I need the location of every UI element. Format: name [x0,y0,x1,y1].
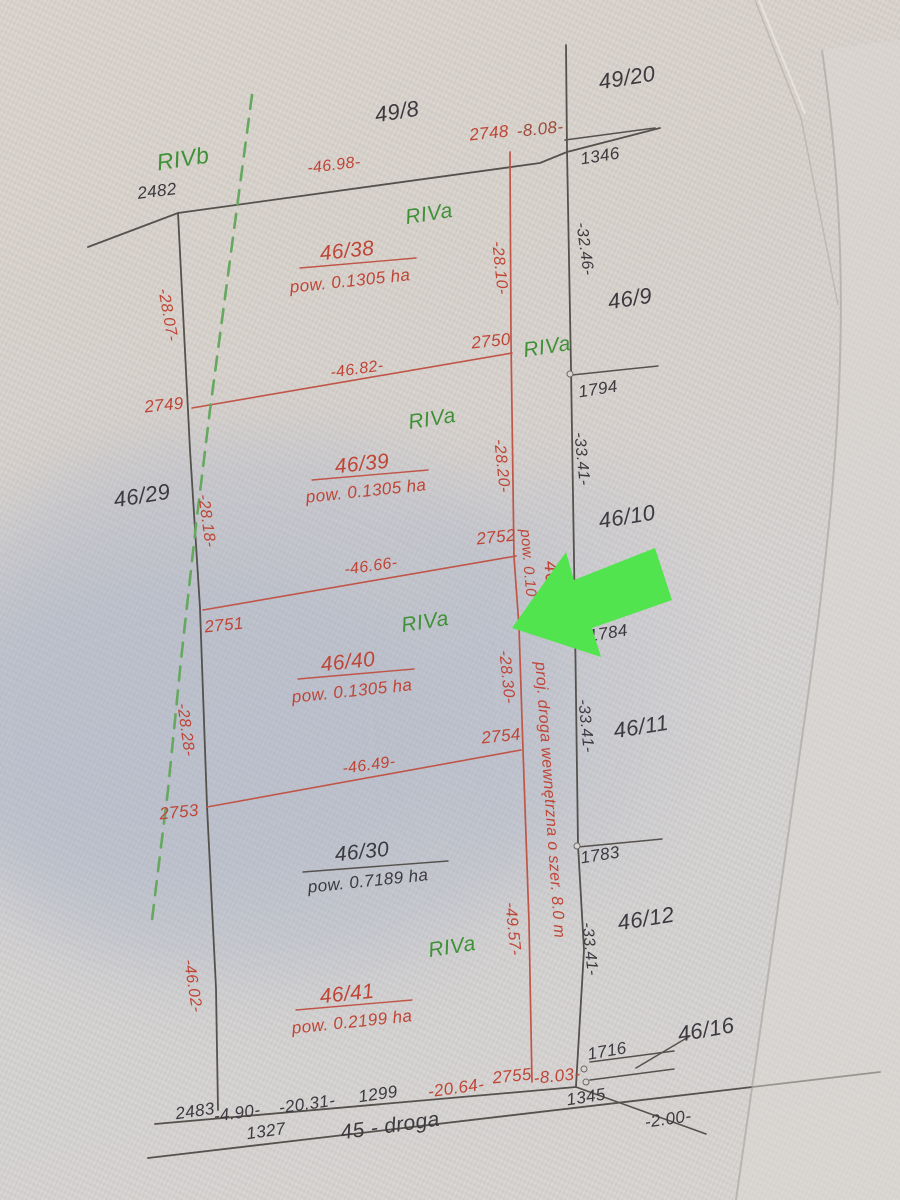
division-road-line [510,152,532,1082]
fraction-bar-46-30 [303,861,448,872]
map-label: RIVa [404,200,454,228]
map-label: RIVa [427,933,477,961]
map-label: 46/10 [597,502,657,533]
map-label: 49/20 [597,63,657,94]
photo-shadow [0,440,570,980]
tick-line-1794 [572,366,658,375]
map-label: 2749 [144,394,185,415]
map-label: pow. 0.7189 ha [307,866,429,896]
map-label: -28.28- [173,702,196,757]
road-lower-edge [148,1072,880,1158]
map-label: -46.98- [306,155,361,177]
map-label: 46/9 [606,285,653,314]
map-label: -28.07- [154,287,179,342]
map-label: 2752 [476,526,517,547]
map-label: 1716 [586,1039,628,1063]
photo-shadow [0,560,440,900]
map-label: 1794 [577,378,619,401]
leader-46-16 [636,1036,690,1068]
fold-crease [755,0,838,305]
map-label: 1783 [579,844,621,867]
map-label: 46/38 [319,238,375,265]
photo-of-cadastral-map: 49/2049/82748-8.08-1346RIVb2482-46.98-RI… [0,0,900,1200]
map-label: -46.49- [341,754,396,777]
fraction-bar-46-38 [300,258,416,268]
map-label: pow. 0.1305 ha [289,266,411,296]
north-boundary-line [88,128,660,247]
map-label: 1784 [587,622,629,645]
map-label: -33.41- [570,432,592,487]
map-label: 2483 [174,1100,215,1122]
map-label: proj. droga wewnętrzna o szer. 8.0 m [531,661,566,938]
segment-2-00 [576,1087,706,1134]
map-label: -8.08- [516,118,564,140]
division-line-46-66 [203,556,516,610]
underlying-sheet [736,40,900,1200]
map-label: 46/29 [112,481,172,512]
map-label: -2.00- [644,1107,693,1130]
map-label: -46.66- [343,555,398,578]
map-label: RIVa [522,333,572,361]
map-label: -8.03- [533,1065,581,1087]
map-label: 1299 [357,1083,398,1105]
map-label: -46.82- [329,358,384,381]
map-label: 2754 [481,725,522,746]
map-label: pow. 0.2199 ha [291,1007,413,1037]
map-label: -28.18- [194,493,217,548]
paper-edge [736,50,841,1200]
map-label: 1345 [565,1086,607,1109]
map-label: 2751 [204,614,245,635]
map-label: 46/40 [320,649,376,676]
map-label: pow. 0.10 [518,529,539,598]
west-boundary-line [178,213,218,1110]
map-label: RIVa [400,608,450,636]
fold-crease-highlight [759,0,805,114]
map-drawing-layer [0,0,900,1200]
map-label: RIVa [407,405,457,433]
map-label: 2753 [159,801,200,822]
fraction-bar-46-41 [296,1000,412,1010]
map-label: 46/41 [319,981,375,1008]
map-label: 46/16 [676,1014,736,1046]
map-label: -49.57- [501,902,523,957]
map-label: RIVb [155,144,211,175]
map-label: pow. 0.1305 ha [305,476,427,506]
junction-marker [581,1066,587,1072]
map-label: -46.02- [180,958,204,1013]
division-line-46-49 [207,750,521,807]
map-label: -33.41- [574,699,596,754]
map-label: 46/3 [540,560,563,602]
green-highlight-arrow [512,548,672,657]
map-label: 2755 [492,1065,533,1086]
map-label: 1327 [245,1120,286,1142]
photo-shadow [430,470,690,890]
east-boundary-line [566,45,584,1086]
map-label: 45 - droga [339,1109,441,1144]
map-label: -32.46- [572,221,595,276]
tick-line-1716-a [590,1051,674,1062]
map-label: -28.20- [490,439,512,494]
map-label: 46/39 [334,451,390,478]
map-label: 1346 [579,145,621,168]
map-label: -20.64- [427,1076,485,1101]
fraction-bar-46-40 [298,669,414,679]
map-label: 46/11 [612,712,670,742]
map-label: 2748 [469,122,510,143]
junction-marker [574,843,580,849]
junction-marker [583,1079,589,1085]
map-label: -28.30- [495,650,517,705]
map-label: 49/8 [373,98,420,127]
division-line-46-82 [192,353,512,408]
fraction-bar-46-39 [312,470,428,480]
annotation-and-paper-layer [0,0,900,1200]
junction-marker [567,371,573,377]
map-label: -28.10- [488,241,510,296]
map-label: -20.31- [278,1092,336,1117]
map-label: 2750 [471,330,512,351]
soil-class-dashed-line [152,95,252,920]
map-label: -4.90- [213,1101,262,1124]
map-label: -33.41- [578,922,600,977]
map-label: pow. 0.1305 ha [291,676,413,706]
tick-line-1783 [578,839,662,847]
paper-edge-and-creases [736,0,900,1200]
tick-line-1346 [565,128,655,140]
map-labels-layer: 49/2049/82748-8.08-1346RIVb2482-46.98-RI… [0,0,900,1200]
tick-line-1716-b [590,1069,674,1080]
road-upper-edge [155,1087,576,1124]
map-label: 2482 [136,180,177,202]
map-label: 46/12 [616,904,676,935]
map-label: 46/30 [334,839,390,866]
